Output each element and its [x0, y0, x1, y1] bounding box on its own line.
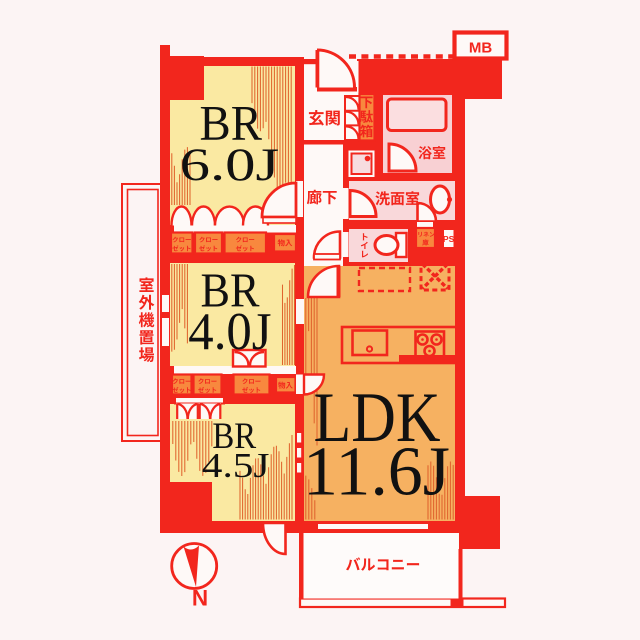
svg-text:PS: PS: [443, 234, 455, 244]
svg-text:11.6J: 11.6J: [303, 434, 450, 511]
svg-text:MB: MB: [469, 40, 492, 57]
svg-text:4.0J: 4.0J: [188, 303, 271, 361]
svg-text:6.0J: 6.0J: [180, 139, 280, 191]
svg-text:4.5J: 4.5J: [202, 446, 270, 485]
svg-text:N: N: [192, 586, 208, 611]
